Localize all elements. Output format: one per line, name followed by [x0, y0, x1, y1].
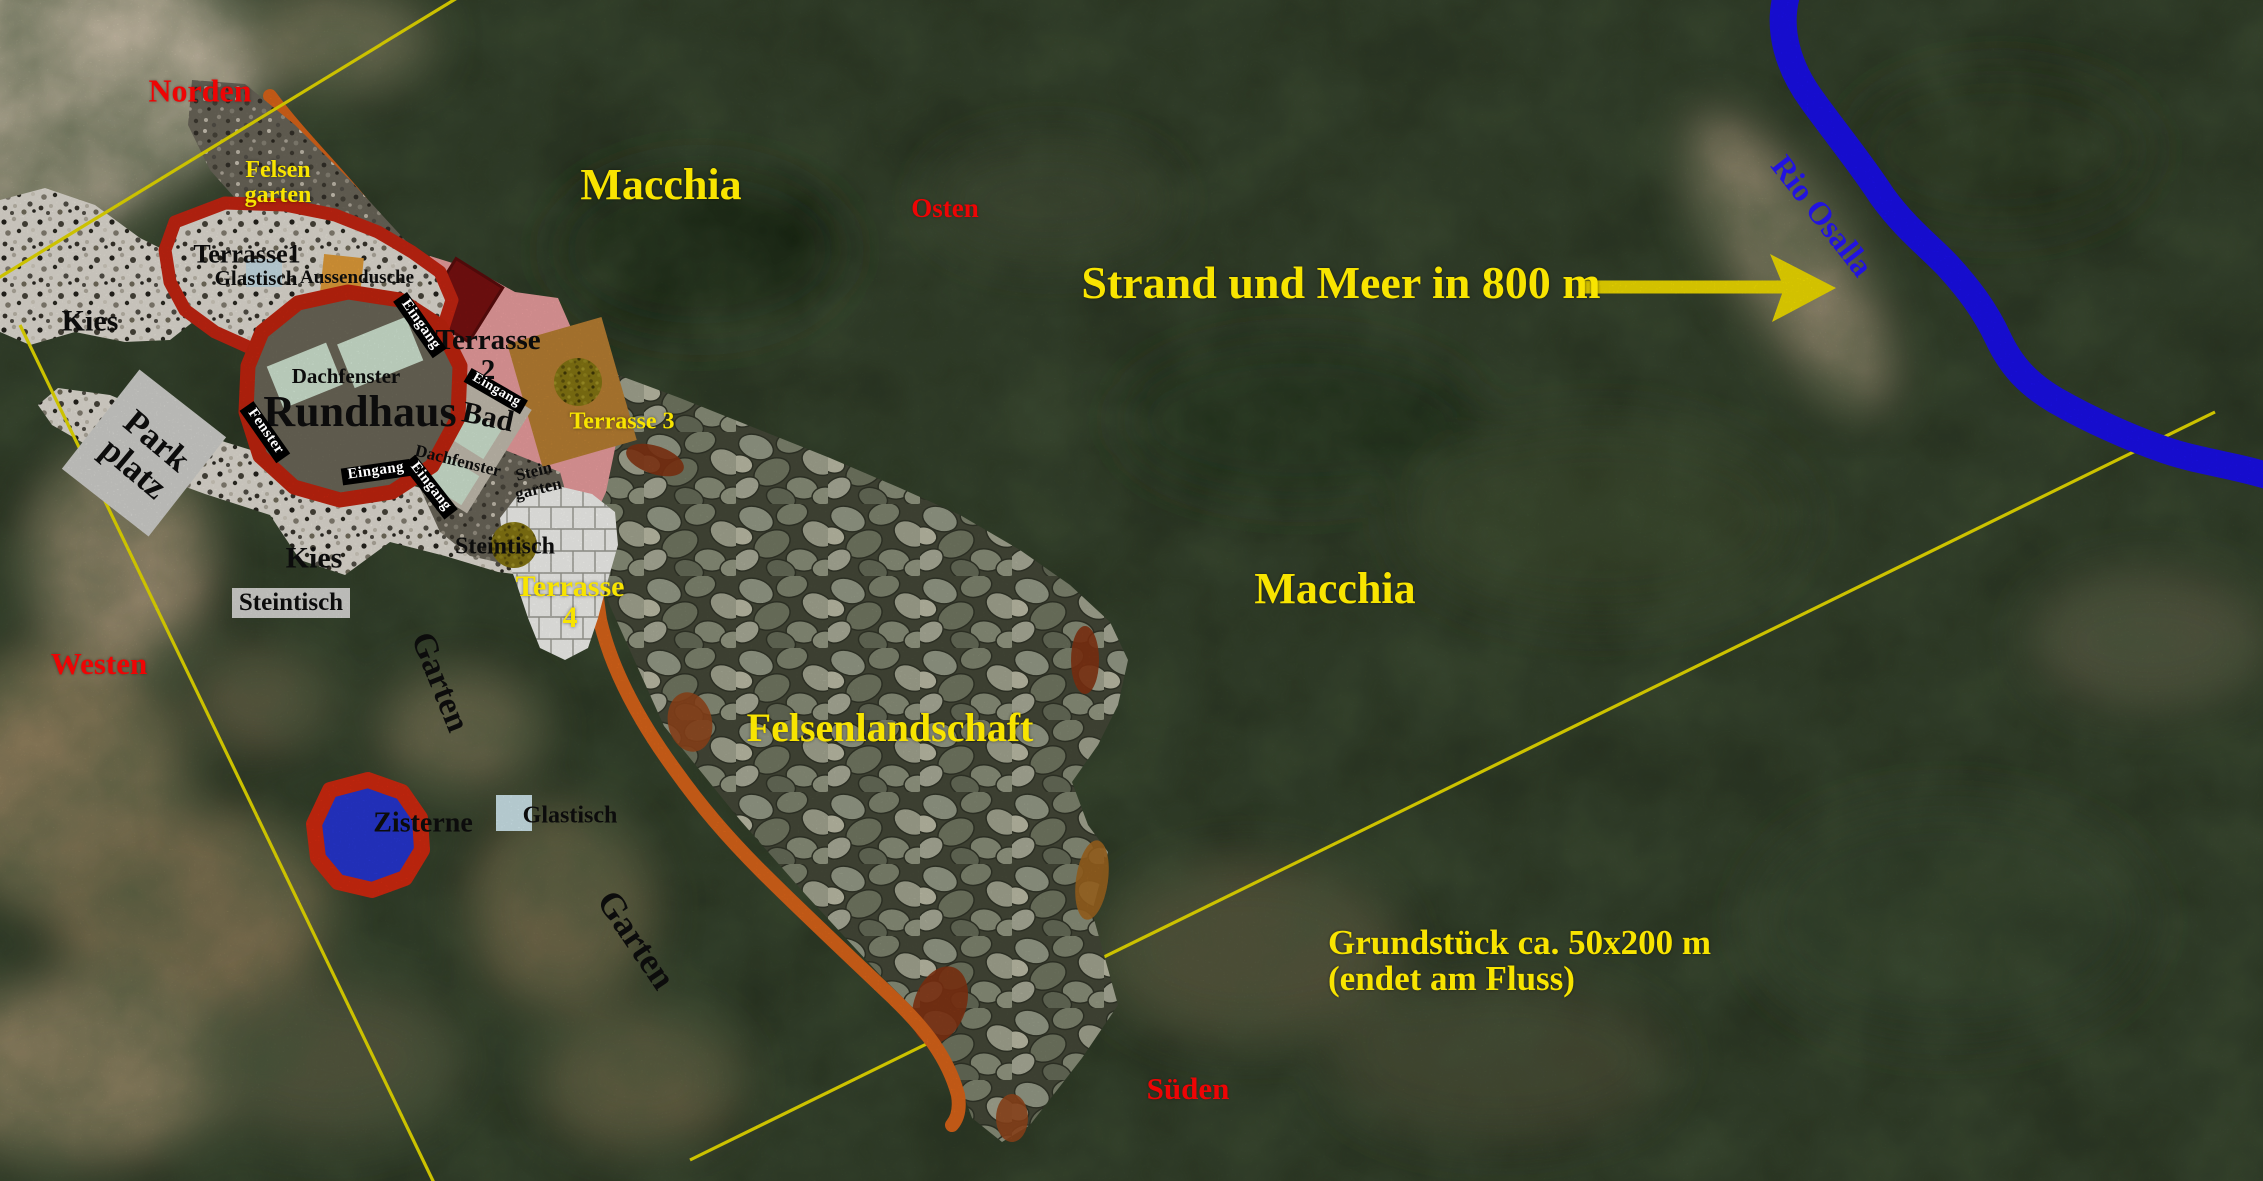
terrasse3-label: Terrasse 3 — [569, 410, 674, 435]
felsenlandschaft-label: Felsenlandschaft — [747, 707, 1034, 749]
steintisch-terrasse4-label: Steintisch — [455, 535, 555, 560]
property-map: Norden Osten Westen Süden Macchia Macchi… — [0, 0, 2263, 1181]
terrasse4-label: Terrasse 4 — [516, 571, 625, 633]
macchia-north-label: Macchia — [580, 162, 741, 208]
grundstueck-line1: Grundstück ca. 50x200 m — [1328, 925, 1711, 961]
glastisch-terrasse1-label: Glastisch — [215, 268, 298, 290]
strand-note-label: Strand und Meer in 800 m — [1081, 259, 1600, 307]
rundhaus-label: Rundhaus — [263, 389, 456, 435]
kies-south-label: Kies — [286, 542, 343, 573]
terrasse1-label: Terrasse1 — [193, 240, 300, 267]
zisterne-label: Zisterne — [373, 808, 473, 837]
terrasse4-line1: Terrasse — [516, 571, 625, 602]
dachfenster-haus-label: Dachfenster — [292, 366, 400, 388]
compass-east-label: Osten — [911, 194, 979, 222]
felsengarten-line1: Felsen — [245, 158, 312, 183]
felsengarten-line2: garten — [245, 183, 312, 208]
steintisch-kies-label: Steintisch — [239, 590, 343, 616]
aussendusche-label: Aussendusche — [300, 268, 414, 288]
compass-north-label: Norden — [148, 74, 251, 107]
terrasse2-line1: Terrasse — [435, 325, 540, 355]
compass-south-label: Süden — [1147, 1073, 1230, 1105]
felsengarten-label: Felsen garten — [245, 158, 312, 208]
grundstueck-note: Grundstück ca. 50x200 m (endet am Fluss) — [1328, 925, 1711, 998]
kies-north-label: Kies — [62, 305, 119, 336]
macchia-center-label: Macchia — [1254, 566, 1415, 612]
terrasse4-line2: 4 — [516, 602, 625, 633]
grundstueck-line2: (endet am Fluss) — [1328, 961, 1711, 997]
glastisch-garten-label: Glastisch — [523, 804, 618, 829]
compass-west-label: Westen — [51, 648, 147, 680]
